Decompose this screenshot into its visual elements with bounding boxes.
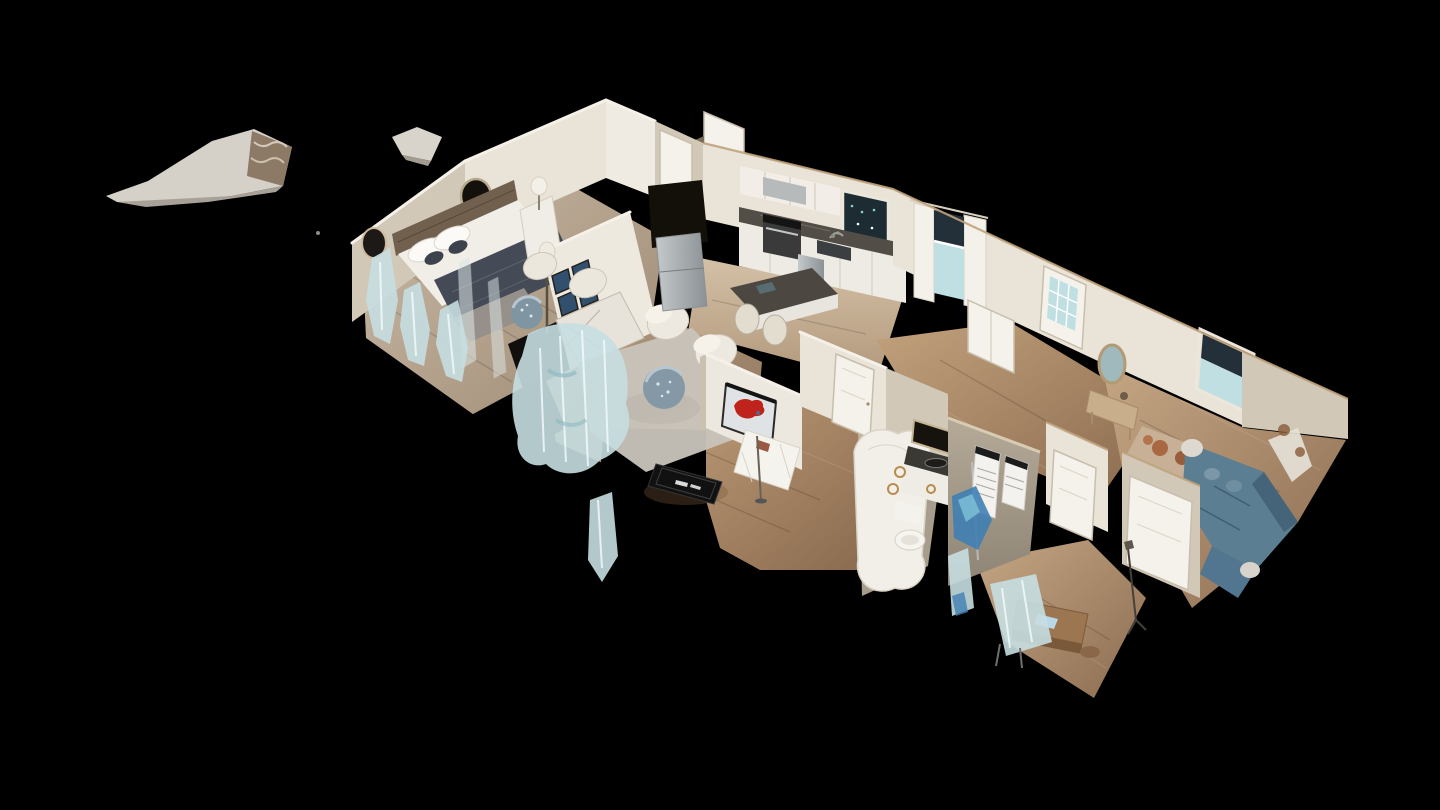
dollhouse-svg [0,0,1440,810]
dollhouse-canvas[interactable] [0,0,1440,810]
window-glass-lower [934,241,964,300]
oval-mirror [1099,345,1125,383]
sofa-pillow [1226,480,1242,492]
rug-medallion [1152,440,1168,456]
bar-stool [763,315,787,345]
scan-ghost-large [512,323,629,473]
curtain-panel [964,215,986,310]
ceiling-fragment-small [392,127,442,166]
scan-speck [316,231,320,235]
rear-wall-d [1242,351,1348,439]
sofa-pillow [1204,468,1220,480]
curtain-panel [914,203,934,302]
rug-medallion [1143,435,1153,445]
hall-door [832,354,874,438]
vanity-sink [925,459,947,468]
closet-wall [606,100,655,197]
ceiling-fragment-large [106,129,292,207]
bar-stool [735,304,759,334]
sofa-arm-throw [1240,562,1260,578]
scan-ghost-hanging [588,492,618,582]
stool [1080,646,1100,658]
table-lamp [531,177,547,195]
console-decor [1120,392,1128,400]
sofa-arm-throw [1181,439,1203,457]
